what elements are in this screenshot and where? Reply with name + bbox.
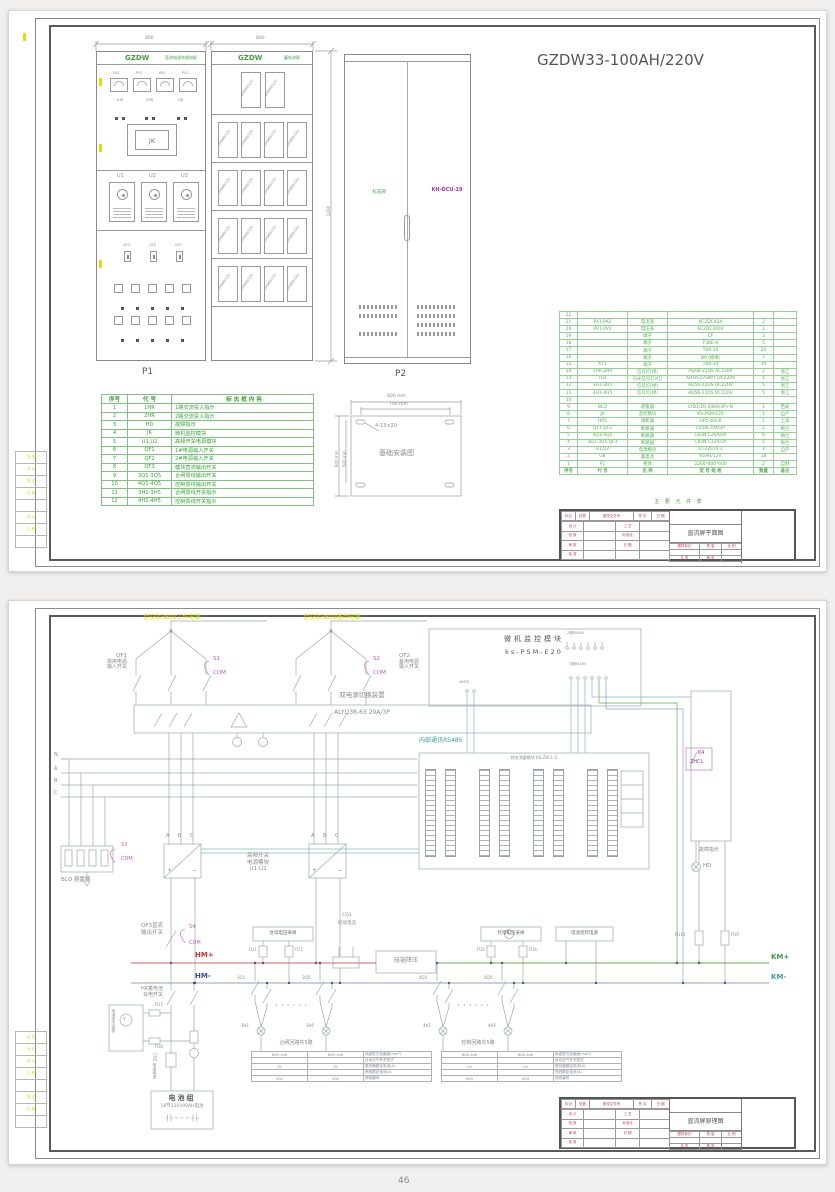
meter-label: PA1 [113,72,120,76]
sheet-title: 直流屏平面图 [669,525,741,543]
feeder-close-title: 合闸回路共5路 [261,1041,331,1047]
cabinet3-tag: P2 [395,369,406,379]
door-split [407,61,408,357]
vent-grille [359,305,399,309]
switch-label: QF2 [149,244,156,248]
battery-sample-label: 电池电压采样 [111,1009,115,1049]
feeder-3q5-code: 3Q5 [302,976,310,980]
qf3-label: QF3直流 输出开关 [117,923,163,936]
foundation-dim-outer-h: 600 mm [335,450,339,467]
divider [97,170,205,171]
foundation-slots: 4-13×20 [375,424,397,430]
silicon-dropper-label: 硅链降压 [376,957,436,964]
phase-a: A [54,767,57,773]
rectifier-module [173,182,199,222]
terminal-strip [445,769,456,857]
terminal-strip [587,769,598,857]
feeder-3h5-lamp: 3H5 [306,1024,314,1028]
vent-grille [417,323,457,327]
lamp-label: 2HR [146,99,153,103]
cabinet2-brand: GZDW [238,54,262,62]
fault-lamp-code: HD [703,863,711,870]
bom-table: 2221PA1,PA2电流表6C2DC40A220PV1,PV2电压表6C2DC… [559,311,797,475]
battery-cell: 100AH/12V [287,266,307,302]
feeder-lamp-row [102,327,202,346]
panel-meter [133,78,151,92]
approval-grid: 设 计工 艺校 核标准化审 核日 期批 准 [561,1109,670,1148]
battery-cell: 100AH/12V [218,122,238,158]
module-label: U1 [117,174,124,180]
shelf [212,114,312,115]
rectifier-module [141,182,167,222]
feeder-3h1-lamp: 3H1 [241,1024,249,1028]
ats-model: ALYQ3R-63 20A/3P [262,709,462,716]
sheet-title: 直流屏原理图 [669,1113,741,1131]
k4-code: K4 [698,751,704,757]
qf2-aux-label: S2 [373,656,380,663]
bus-km-plus-label: KM+ [771,953,789,961]
breaker-handle [124,251,131,262]
feeder-4q5-code: 4Q5 [484,976,492,980]
fu8-label: FU8 [155,1045,163,1049]
phase-n: N [54,753,58,759]
qf3-com-label: COM [189,941,201,947]
battery-voltmeter: V [123,1017,126,1021]
supply-left-label: 至交流380V工作电源 [117,614,227,621]
drawing-canvas: 会 签专 业签 字日 期签 字日 期 GZDW33-100AH/220V [0,0,835,1192]
dcu-label: KH-DCU-19 [427,187,467,193]
mark-grid: 图样标记质 量比 例共 张第 张 [669,1131,742,1150]
feeder-4q1-code: 4Q1 [419,976,427,980]
fu6-label: FU6 [529,948,537,952]
panel-meter [110,78,128,92]
supply-right-label: 至交流380V备用电源 [277,614,387,621]
monitor-port-group2: 3路RS485 [569,663,586,667]
tag-mark [99,144,102,152]
terminal-strip [607,769,618,857]
k4-name: ZHCL [690,760,703,766]
km-sample-v: V [506,931,509,935]
rect1-phase-c: C [190,834,194,840]
patrol-box-label: 电池巡检电源 [557,931,612,936]
fu9-label: FU9 [731,933,739,937]
signature-strip: 会 签专 业签 字日 期签 字日 期 [15,1031,47,1128]
battery-title: 电池组 [151,1094,213,1102]
qf2-label: QF2 备用电源 输入开关 [399,653,451,671]
monitor-port-group3: 485口 [459,681,469,685]
bus-hm-plus-label: HM+ [195,951,214,959]
rect2-plus: + [312,867,317,874]
blq-label: BLQ 避雷器 [61,877,90,884]
cabinet-p1-front: GZDW 直流电源充馈电屏 PA1 PV1 PA2 PV2 1HR 2HR HD… [96,51,206,361]
sheet-2: 会 签专 业签 字日 期签 字日 期 [8,600,827,1165]
monitor-model: ks-PSM-E20 [464,649,604,657]
shelf [212,306,312,307]
qf1-com-label: COM [213,670,226,677]
battery-symbols: ┤├ ╌ ╌ ╌ ┤├ [151,1115,213,1122]
vent-grille [417,314,457,318]
fu5-label: FU5 [477,948,485,952]
shelf [212,162,312,163]
margin-mark [23,33,26,41]
terminal-strip [533,769,544,857]
lamp-pair [113,105,127,124]
qf1-aux-label: S1 [213,656,220,663]
bus-km-minus-label: KM- [771,973,786,981]
shelf [212,210,312,211]
cabinet1-name: 直流电源充馈电屏 [165,56,197,60]
rect2-phase-c: C [335,834,339,840]
km-sample-box-label: 控母电压采样 [482,931,540,936]
cq1-label: 控母电流 [327,921,367,926]
battery-cell: 100AH/12V [264,122,284,158]
blq-com-label: COM [121,857,133,863]
battery-cell: 100AH/12V [218,170,238,206]
vent-grille [359,314,399,318]
ellipsis-dots: ······ [275,1001,310,1011]
switch-label: QF3 [123,244,130,248]
switch-label: QF1 [175,244,182,248]
feeder-close-table: BVV-2x6BVV-2x6电缆型式及截面(mm²)自动空气开关型式3232脱扣… [251,1051,432,1082]
cabinet1-tag: P1 [142,367,153,377]
cabinet2-name: 蓄电池屏 [284,56,300,60]
terminal-strip [499,769,510,857]
battery-cell: 100AH/12V [287,170,307,206]
battery-cell: 100AH/12V [287,122,307,158]
battery-subtitle: 18节12V100AH电池 [151,1104,213,1109]
mark-grid: 图样标记质 量比 例共 张第 张 [669,543,742,562]
meter-label: PA2 [159,72,166,76]
qf1-label: QF1 常用电源 输入开关 [75,653,127,671]
lamp-label: 1HR [116,99,123,103]
breaker-handle [176,251,183,262]
revision-row: 标记处数更改文件号签 字日 期 [561,511,670,521]
cabinet-battery-front: GZDW 蓄电池屏 100AH/12V 100AH/12V 100AH/12V … [211,51,313,361]
door-handle [404,215,410,241]
title-block: 标记处数更改文件号签 字日 期 设 计工 艺校 核标准化审 核日 期批 准 直流… [559,1097,796,1149]
hm-sample-box-label: 合母电压采样 [254,931,312,936]
terminal-strip [425,769,436,857]
signature-strip: 会 签专 业签 字日 期签 字日 期 [15,451,47,548]
module-label: U2 [149,174,156,180]
feeder-4h1-lamp: 4H1 [423,1024,431,1028]
sheet-1: 会 签专 业签 字日 期签 字日 期 GZDW33-100AH/220V [8,10,827,572]
shelf [212,258,312,259]
panel-meter [156,78,174,92]
rs485-label: 内部通讯RS485 [419,737,462,744]
feeder-ctrl-title: 控制回路共5路 [443,1041,513,1047]
rect1-phase-a: A [166,834,169,840]
bom-caption: 主 要 元 件 表 [609,500,749,506]
fu2-label: FU2 [295,948,303,952]
drawing-title: GZDW33-100AH/220V [537,51,704,69]
fu1-label: FU1 [249,948,257,952]
battery-cell: 100AH/12V [241,266,261,302]
blq-aux-label: S3 [121,843,127,849]
company-cell [741,1099,798,1151]
battery-cell: 100AH/12V [241,122,261,158]
tag-mark [99,78,102,86]
terminal-strip [479,769,490,857]
rect2-phase-a: A [311,834,314,840]
battery-cell: 100AH/12V [241,218,261,254]
door-plate-label: 标志牌 [359,190,399,195]
battery-cell: 100AH/12V [264,170,284,206]
module-label: U3 [181,174,188,180]
jk-module-display: JK [135,130,169,150]
ats-title: 双电源切换装置 [262,692,462,700]
project-cell [669,1099,741,1113]
fu7-label: FU7 [155,1003,163,1007]
zhcl-title: 综合测量模块 KS-ZHCL-2 [424,756,644,760]
foundation-dim-inner-h: 500 mm [343,450,347,467]
feeder-ctrl-table: BVV-2x6BVV-2x6电缆型式及截面(mm²)自动空气开关型式2020脱扣… [441,1051,622,1082]
meter-label: PV1 [136,72,143,76]
foundation-dim-inner-w: 700 mm [389,402,408,407]
project-cell [669,511,741,525]
rect2-phase-b: B [323,834,326,840]
breaker-handle [150,251,157,262]
revision-row: 标记处数更改文件号签 字日 期 [561,1099,670,1109]
ellipsis-dots: ······ [457,1001,492,1011]
vent-grille [359,332,399,336]
lamp-pair [175,105,189,124]
divider [97,230,205,231]
fu10-label: FU10 [675,933,685,937]
bus-hm-minus-label: HM- [195,972,211,980]
phase-c: C [54,791,58,797]
rect1-plus: + [167,867,172,874]
phase-b: B [54,779,57,785]
battery-cell: 100AH/12V [287,218,307,254]
foundation-title: 基础安装图 [379,449,414,457]
dim-800-cab2: 800 [256,36,265,41]
fault-label: 故障指示 [699,848,719,854]
monitor-port-group1: 2路RS485 [567,632,584,636]
company-cell [741,511,798,563]
cq2-label: CQ2 电池电流 [152,1053,156,1083]
cabinet-p2-front: 标志牌 KH-DCU-19 [344,54,471,364]
terminal-strip [553,769,564,857]
divider [97,64,205,65]
title-block: 标记处数更改文件号签 字日 期 设 计工 艺校 核标准化审 核日 期批 准 直流… [559,509,796,561]
qf2-com-label: COM [373,670,386,677]
lamp-pair [143,105,157,124]
rectifier-label: 高频开关 电源模块 U1-U2 [235,853,281,873]
vent-grille [417,305,457,309]
panel-meter [179,78,197,92]
foundation-dim-outer-w: 800 mm [387,394,406,399]
divider [212,64,312,65]
rect1-minus: − [192,867,197,874]
battery-cell: 100AH/12V [264,266,284,302]
battery-cell: 100AH/12V [264,218,284,254]
legend-table: 序号代 号标 志 框 内 容11HR1路交流投入指示22HR2路交流投入指示3H… [101,394,314,506]
approval-grid: 设 计工 艺校 核标准化审 核日 期批 准 [561,521,670,560]
cq1-code: CQ1 [331,913,363,918]
dim-800-cab1: 800 [145,36,154,41]
qf3-aux-label: S4 [189,925,195,931]
dim-height: 2260 [327,206,331,216]
monitor-title: 微机监控模块 [464,635,604,643]
tag-mark [99,260,102,268]
rectifier-module [109,182,135,222]
bottom-strip [345,357,470,358]
rect2-minus: − [337,867,342,874]
vent-grille [417,332,457,336]
battery-cell: 100AH/12V [241,72,261,108]
lamp-label: HD [178,99,183,103]
page-number: 46 [398,1176,409,1186]
feeder-3q1-code: 3Q1 [237,976,245,980]
hk-switch-label: HK蓄电池 充电开关 [113,987,163,999]
rect1-phase-b: B [178,834,181,840]
battery-cell: 100AH/12V [218,218,238,254]
meter-label: PV2 [182,72,189,76]
battery-cell: 100AH/12V [241,170,261,206]
cabinet1-brand: GZDW [125,54,149,62]
battery-cell: 100AH/12V [265,72,285,108]
battery-cell: 100AH/12V [218,266,238,302]
feeder-4h5-lamp: 4H5 [488,1024,496,1028]
